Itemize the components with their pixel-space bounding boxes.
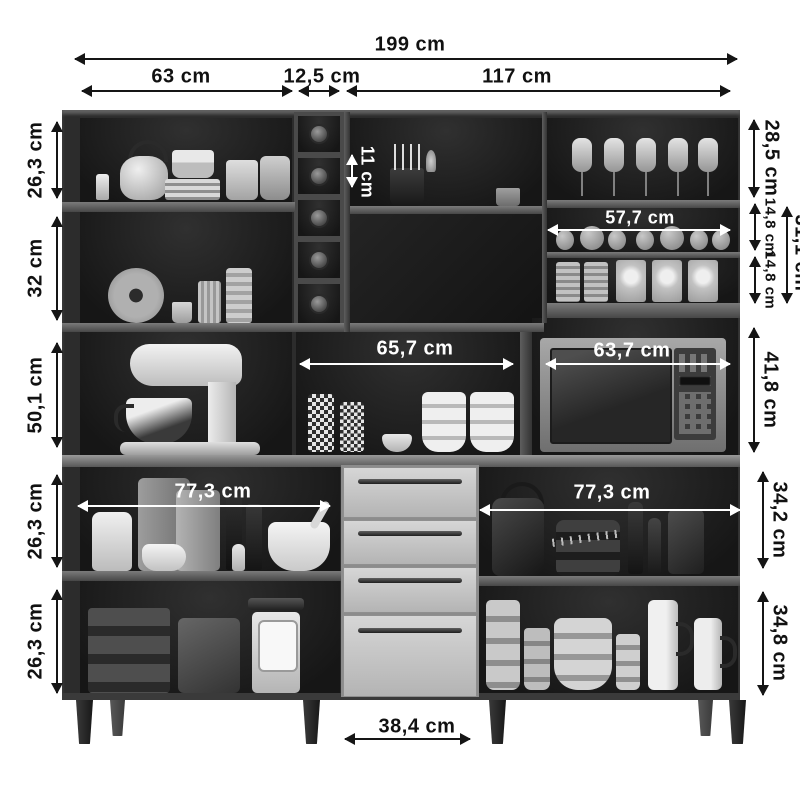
dim-base-right-width: 77,3 cm [574, 482, 651, 505]
dim-middle-shelf-width-arrow [300, 363, 513, 365]
dim-microwave-height-arrow [753, 328, 755, 452]
labeled-can [652, 260, 682, 302]
shelf-board [62, 202, 295, 212]
ribbed-canister [556, 262, 580, 302]
drawer-handle [358, 628, 462, 633]
patterned-canister [308, 394, 334, 452]
divider [542, 112, 547, 323]
dim-base-left-shelf2-arrow [56, 590, 58, 693]
kettle [120, 156, 168, 200]
shelf-board [344, 206, 544, 214]
dim-base-right-shelf1-arrow [762, 472, 764, 568]
gravy-boat [142, 544, 186, 571]
dim-right-top: 28,5 cm [760, 120, 783, 197]
labeled-can [688, 260, 718, 302]
dim-spice-shelf2: 14,8 cm [762, 251, 779, 310]
dim-spice-shelf-width: 57,7 cm [605, 208, 675, 229]
cup-stack [172, 150, 214, 178]
drawer-handle [358, 578, 462, 583]
dim-wine-rack-inner-arrow [351, 155, 353, 187]
wine-glass [604, 138, 624, 198]
dim-drawer-width-arrow [345, 738, 470, 740]
cabinet-leg [110, 700, 125, 736]
oil-bottle [246, 504, 262, 570]
small-cup-stack [616, 634, 640, 690]
dim-microwave-height: 41,8 cm [759, 352, 782, 429]
dim-left-shelf3: 50,1 cm [25, 357, 48, 434]
dim-base-right-shelf1: 34,2 cm [768, 482, 791, 559]
pot-stack [556, 520, 620, 576]
dim-top-right-arrow [347, 90, 730, 92]
cabinet-leg [76, 700, 93, 744]
wine-glass [636, 138, 656, 198]
storage-jar [92, 512, 132, 571]
mortar-bowl [268, 522, 330, 571]
shelf-board [477, 576, 740, 586]
patterned-canister [340, 402, 364, 452]
utensils [394, 144, 420, 170]
canister [226, 268, 252, 323]
dim-left-shelf2-arrow [56, 217, 58, 320]
wine-bottle-icon [309, 250, 329, 270]
shelf-board [544, 303, 740, 318]
wine-glass [668, 138, 688, 198]
wine-bottle-icon [309, 124, 329, 144]
utensil-crock [390, 168, 424, 206]
cabinet-leg [729, 700, 746, 744]
dim-left-shelf1-arrow [56, 122, 58, 198]
small-cup [172, 302, 192, 323]
drawer-3 [343, 567, 477, 613]
pepper-mill [628, 502, 643, 574]
spice-jar [556, 230, 574, 250]
dim-microwave-width: 63,7 cm [594, 340, 671, 363]
shelf-board [62, 323, 295, 332]
dim-base-left-width-arrow [78, 505, 330, 507]
drawer-2 [343, 520, 477, 565]
dimension-diagram: 199 cm 63 cm 12,5 cm 117 cm 26,3 cm 32 c… [0, 0, 800, 800]
dim-left-shelf3-arrow [56, 343, 58, 447]
dim-base-right-shelf2-arrow [762, 592, 764, 695]
drawer-handle [358, 479, 462, 484]
wine-bottle-icon [309, 294, 329, 314]
dim-drawer-width: 38,4 cm [379, 716, 456, 739]
dim-spice-total-arrow [786, 207, 788, 303]
kitchen-scale [248, 598, 304, 693]
bowl-stack [422, 392, 466, 452]
dim-top-left-width: 63 cm [151, 66, 210, 89]
bowl-stack [470, 392, 514, 452]
dim-spice-shelf-width-arrow [548, 229, 730, 231]
dim-left-shelf1: 26,3 cm [25, 122, 48, 199]
drawer-handle [358, 531, 462, 536]
spice-jar [690, 230, 708, 250]
pepper-mill [648, 518, 661, 574]
dim-top-center-arrow [299, 90, 339, 92]
dim-spice-shelf1: 14,8 cm [762, 198, 779, 257]
cabinet-leg [489, 700, 506, 744]
container-stack [88, 608, 170, 693]
labeled-can [616, 260, 646, 302]
shelf-board [62, 571, 342, 581]
wine-glass [698, 138, 718, 198]
wine-bottle-icon [309, 208, 329, 228]
bowl-stack [554, 618, 612, 690]
spice-jar [636, 230, 654, 250]
drawer-stack [341, 465, 479, 697]
microwave-control-panel [674, 348, 716, 440]
small-pot [226, 160, 258, 200]
dim-spice-total: 31,1 cm [790, 215, 800, 292]
whisk [426, 150, 436, 172]
wine-bottle-icon [309, 166, 329, 186]
dim-base-left-width: 77,3 cm [175, 481, 252, 504]
wine-glass [572, 138, 592, 198]
sugar-shaker [96, 174, 109, 200]
dim-total-width: 199 cm [375, 34, 446, 57]
thermos-mug [648, 600, 678, 690]
dim-middle-shelf-width: 65,7 cm [377, 338, 454, 361]
microwave-display [679, 376, 711, 386]
casserole-dish [178, 618, 240, 693]
dim-base-left-shelf1: 26,3 cm [25, 483, 48, 560]
shelf-board [544, 252, 740, 258]
dim-base-right-shelf2: 34,8 cm [768, 605, 791, 682]
ribbed-canister [584, 262, 608, 302]
divider [344, 112, 350, 332]
dim-microwave-width-arrow [546, 363, 730, 365]
microwave-keypad [679, 392, 711, 434]
dim-base-right-width-arrow [480, 509, 740, 511]
dim-left-shelf2: 32 cm [25, 238, 48, 297]
drawer-4 [343, 615, 477, 697]
dim-top-right-width: 117 cm [482, 66, 552, 89]
stand-mixer [112, 342, 272, 455]
drawer-1 [343, 467, 477, 518]
dim-spice-shelf1-arrow [754, 204, 756, 250]
cabinet-leg [303, 700, 320, 744]
cup-stack [486, 600, 520, 690]
dim-right-top-arrow [753, 120, 755, 197]
spice-jar [608, 230, 626, 250]
plate-stack [165, 179, 220, 200]
salt-shaker [232, 544, 245, 571]
shelf-board [294, 323, 544, 332]
divider [520, 332, 532, 455]
dim-base-left-shelf2: 26,3 cm [25, 603, 48, 680]
cabinet-leg [698, 700, 713, 736]
thermos-mug [694, 618, 722, 690]
bundt-dish [108, 268, 164, 323]
cup-stack [524, 628, 550, 690]
dim-total-width-arrow [75, 58, 737, 60]
dark-canister [668, 510, 704, 574]
wine-rack [294, 112, 344, 332]
canister [198, 281, 221, 323]
dim-top-left-arrow [82, 90, 292, 92]
dim-wine-rack-inner: 11 cm [357, 146, 378, 199]
hutch-middle-panel [350, 212, 542, 323]
dim-base-left-shelf1-arrow [56, 475, 58, 567]
large-pot [260, 156, 290, 200]
small-glass [496, 188, 520, 206]
dim-spice-shelf2-arrow [754, 257, 756, 303]
